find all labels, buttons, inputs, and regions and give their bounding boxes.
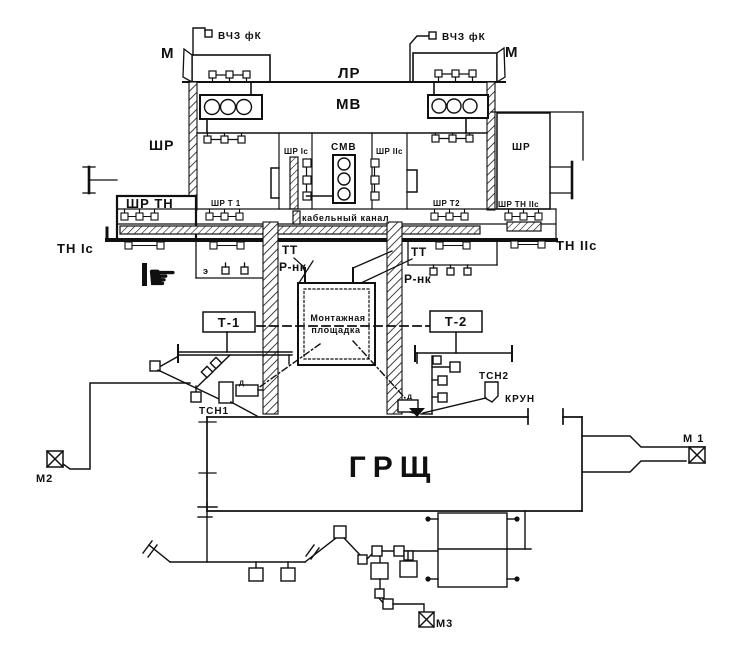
- shr-2s-label: ШР IIс: [376, 147, 403, 156]
- bottom-network: [143, 503, 531, 627]
- distribution-cabinet: [438, 513, 507, 587]
- column-right: [387, 222, 402, 414]
- tn-2s-label: ТН IIс: [556, 238, 597, 253]
- smv-breaker: [333, 155, 355, 203]
- vchz-assembly-left: [193, 28, 212, 55]
- shr-right-label: ШР: [512, 142, 531, 153]
- lv-assembly-right: [398, 356, 498, 417]
- smv-label: СМВ: [331, 142, 357, 153]
- shr-1s-hatch: [290, 157, 298, 209]
- wall-left: [189, 82, 197, 210]
- grsh-label: ГРЩ: [349, 451, 438, 484]
- m2-cable: [63, 383, 190, 469]
- breaker-mv-left: [200, 82, 262, 133]
- vchz-left-label: ВЧЗ фК: [218, 30, 262, 42]
- lr-cabinet-right: [413, 48, 505, 82]
- tsn1-box: [219, 382, 233, 403]
- shr-t1-label: ШР Т 1: [211, 199, 241, 208]
- ibeam-left: [83, 167, 117, 193]
- tt-right-label: ТТ: [411, 245, 427, 259]
- mv-label: МВ: [336, 96, 361, 113]
- hand-pointer-icon: ☛: [142, 259, 177, 297]
- m1-label: М 1: [683, 433, 704, 445]
- shr-tn-label: ШР ТН: [126, 196, 174, 211]
- e-small-label: э: [203, 266, 209, 276]
- busbar-hatch: [120, 226, 480, 234]
- krun-symbol: [485, 382, 498, 402]
- motor-symbol-m2: [47, 383, 190, 469]
- lv-bus-right: [415, 346, 512, 363]
- shr-1s-label: ШР Iс: [284, 147, 308, 156]
- tt-left-label: ТТ: [282, 243, 298, 257]
- shr-tn-2s-label: ШР ТН IIс: [498, 200, 539, 209]
- krun-label: КРУН: [505, 394, 535, 405]
- diagram-canvas: ВЧЗ фК ВЧЗ фК М М ЛР МВ: [0, 0, 736, 653]
- tn-1s-label: ТН Iс: [57, 241, 94, 256]
- tsn2-label: ТСН2: [479, 371, 509, 382]
- m-left-label: М: [161, 45, 175, 62]
- shr-left-label: ШР: [149, 137, 174, 153]
- column-left: [263, 222, 278, 414]
- tsn1-label: ТСН1: [199, 406, 229, 417]
- d-left-label: д: [239, 378, 244, 387]
- d-right-label: д: [407, 392, 412, 401]
- rnk-right-label: Р-нк: [404, 272, 432, 286]
- t2-label: Т-2: [445, 314, 468, 329]
- rnk-left-label: Р-нк: [279, 260, 307, 274]
- m-right-label: М: [505, 44, 519, 61]
- cable-channel-label: кабельный канал: [302, 213, 389, 223]
- hand-pointer-glyph: ☛: [147, 259, 177, 297]
- m2-label: М2: [36, 473, 53, 485]
- scheme-page: ВЧЗ фК ВЧЗ фК М М ЛР МВ: [0, 0, 736, 653]
- lr-label: ЛР: [338, 65, 361, 82]
- vchz-right-label: ВЧЗ фК: [442, 31, 486, 43]
- breaker-mv-right: [428, 82, 488, 133]
- busbar-hatch-right: [507, 222, 541, 231]
- lr-cabinet-left: [183, 49, 270, 82]
- t1-label: Т-1: [218, 315, 241, 330]
- shr-t2-label: ШР Т2: [433, 199, 460, 208]
- m3-label: М3: [436, 618, 453, 630]
- shr-right-cabinet: [491, 112, 583, 209]
- montage-label-1: Монтажная: [310, 313, 365, 323]
- channel-hatch: [293, 211, 300, 224]
